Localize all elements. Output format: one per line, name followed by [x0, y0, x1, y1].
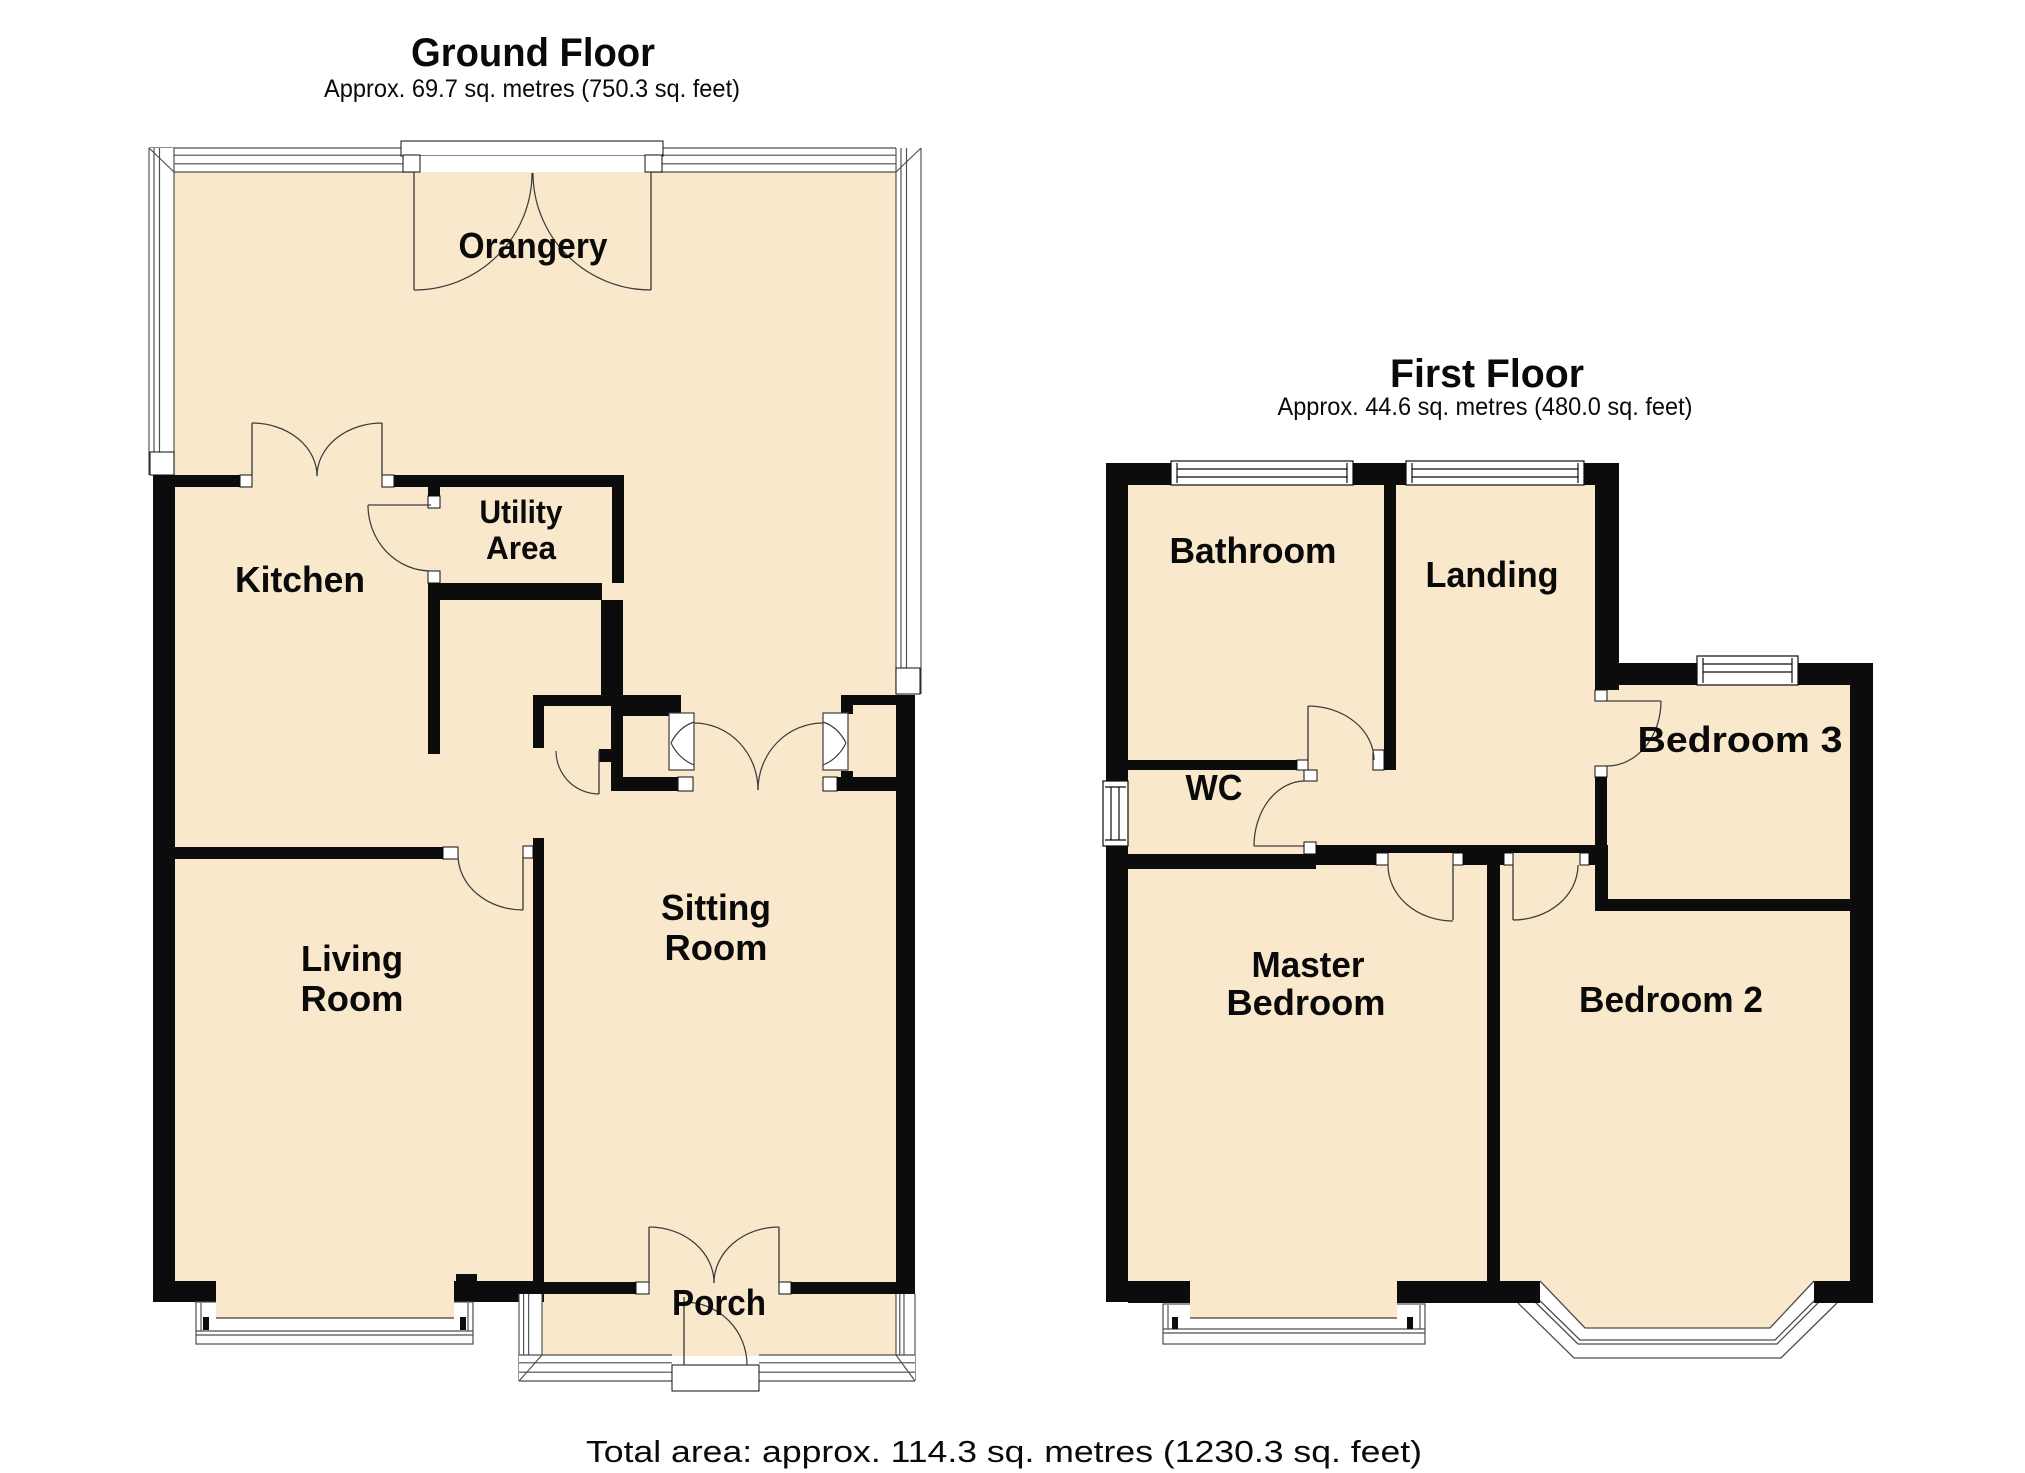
svg-text:Sitting: Sitting: [661, 887, 771, 928]
svg-text:Master: Master: [1252, 944, 1365, 985]
svg-text:First Floor: First Floor: [1390, 352, 1584, 396]
svg-text:WC: WC: [1186, 767, 1243, 808]
svg-text:Bedroom 2: Bedroom 2: [1579, 979, 1763, 1020]
svg-text:Orangery: Orangery: [459, 225, 608, 266]
svg-text:Room: Room: [301, 978, 404, 1019]
svg-text:Bedroom 3: Bedroom 3: [1638, 719, 1843, 760]
svg-text:Living: Living: [301, 938, 403, 979]
svg-text:Kitchen: Kitchen: [235, 559, 365, 600]
svg-text:Room: Room: [665, 927, 768, 968]
svg-text:Approx. 44.6 sq. metres (480.0: Approx. 44.6 sq. metres (480.0 sq. feet): [1278, 393, 1693, 421]
svg-text:Bathroom: Bathroom: [1170, 530, 1337, 571]
svg-text:Porch: Porch: [672, 1282, 766, 1323]
svg-text:Bedroom: Bedroom: [1227, 982, 1386, 1023]
svg-text:Approx. 69.7 sq. metres (750.3: Approx. 69.7 sq. metres (750.3 sq. feet): [324, 75, 740, 103]
svg-text:Area: Area: [486, 530, 556, 566]
svg-text:Total area: approx. 114.3 sq.: Total area: approx. 114.3 sq. metres (12…: [586, 1434, 1422, 1469]
svg-text:Utility: Utility: [480, 494, 563, 530]
svg-text:Landing: Landing: [1426, 554, 1559, 595]
svg-text:Ground Floor: Ground Floor: [411, 31, 655, 75]
